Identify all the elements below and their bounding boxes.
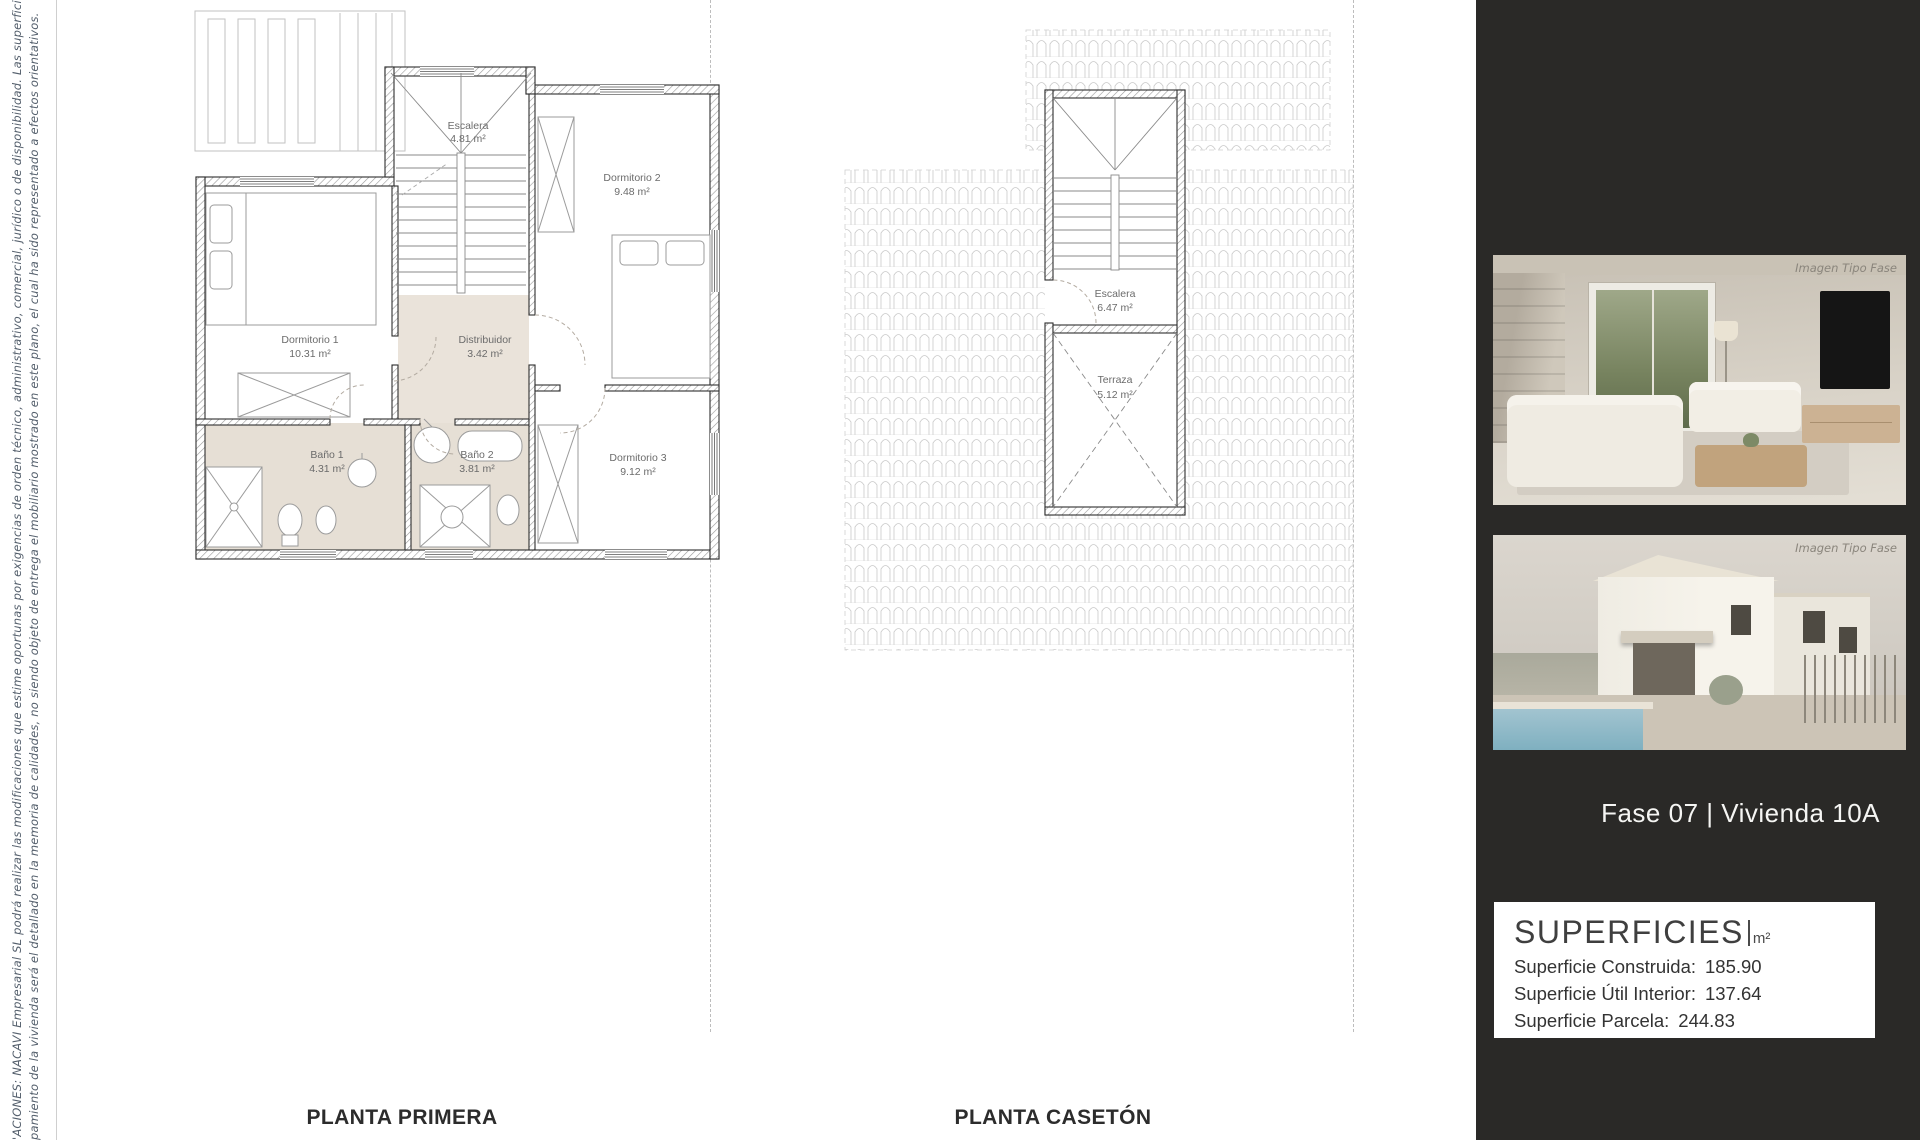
room-area-escalera: 6.47 m² [1097,302,1133,314]
disclaimer-line-2: pamiento de la vivienda será el detallad… [27,12,41,1140]
floor-plan-planta-caseton: Escalera 6.47 m² Terraza 5.12 m² [840,15,1360,655]
pergola-slats [195,11,405,151]
room-label-escalera: Escalera [1095,288,1136,300]
photo-exterior-render: Imagen Tipo Fase [1493,535,1906,750]
title-divider [1748,920,1750,946]
superficie-row: Superficie Construida:185.90 [1514,956,1875,978]
plan-title-planta-primera: PLANTA PRIMERA [242,1106,562,1130]
bush [1709,675,1743,705]
coffee-table [1695,445,1807,487]
superficies-title: SUPERFICIES [1514,914,1744,950]
superficie-label: Superficie Útil Interior: [1514,983,1696,1004]
room-area-dormitorio1: 10.31 m² [289,348,331,360]
plan-title-planta-caseton: PLANTA CASETÓN [893,1106,1213,1130]
house-window [1839,627,1857,653]
house-window [1731,605,1751,635]
room-area-distribuidor: 3.42 m² [467,348,503,360]
room-label-terraza: Terraza [1097,374,1132,386]
sideboard [1802,405,1900,443]
porch-opening [1633,643,1695,703]
room-area-dormitorio3: 9.12 m² [620,466,656,478]
room-area-escalera: 4.81 m² [450,133,486,145]
photo-interior-render: Imagen Tipo Fase [1493,255,1906,505]
floor-lamp-shade [1714,321,1738,341]
fence [1804,655,1896,723]
room-area-bano2: 3.81 m² [459,463,495,475]
stair [391,73,531,293]
phase-unit-label: Fase 07 | Vivienda 10A [1476,798,1880,829]
superficie-value: 185.90 [1705,956,1762,977]
room-label-bano2: Baño 2 [460,449,493,461]
disclaimer-line-1: 'ACIONES: NACAVI Empresarial SL podrá re… [10,0,24,1140]
room-area-bano1: 4.31 m² [309,463,345,475]
superficies-unit: m² [1753,930,1771,947]
superficie-row: Superficie Parcela:244.83 [1514,1010,1875,1032]
room-label-dormitorio1: Dormitorio 1 [281,334,338,346]
room-area-terraza: 5.12 m² [1097,389,1133,401]
room-label-dormitorio2: Dormitorio 2 [603,172,660,184]
superficie-row: Superficie Útil Interior:137.64 [1514,983,1875,1005]
room-label-dormitorio3: Dormitorio 3 [609,452,666,464]
floor-plan-planta-primera: Escalera 4.81 m² Dormitorio 2 9.48 m² Do… [180,5,720,570]
wall-tv [1820,291,1890,389]
room-label-escalera: Escalera [448,120,489,132]
distant-landscape [1493,653,1615,699]
room-label-bano1: Baño 1 [310,449,343,461]
side-panel: Imagen Tipo Fase Imagen Tipo Fase Fase 0… [1476,0,1920,1140]
room-label-distribuidor: Distribuidor [458,334,512,346]
superficie-value: 137.64 [1705,983,1762,1004]
table-plant [1743,433,1759,447]
pool [1493,709,1643,750]
photo-caption: Imagen Tipo Fase [1795,541,1897,555]
photo-caption: Imagen Tipo Fase [1795,261,1897,275]
superficie-value: 244.83 [1678,1010,1735,1031]
superficies-box: SUPERFICIESm² Superficie Construida:185.… [1494,902,1875,1038]
sofa-left [1507,395,1683,487]
left-frame-line [56,0,57,1140]
superficies-title-row: SUPERFICIESm² [1514,914,1875,951]
room-area-dormitorio2: 9.48 m² [614,186,650,198]
superficie-label: Superficie Construida: [1514,956,1696,977]
pool-edge [1493,702,1653,709]
superficie-label: Superficie Parcela: [1514,1010,1669,1031]
porch-canopy [1621,631,1713,643]
sofa-right [1689,382,1801,432]
house-window [1803,611,1825,643]
